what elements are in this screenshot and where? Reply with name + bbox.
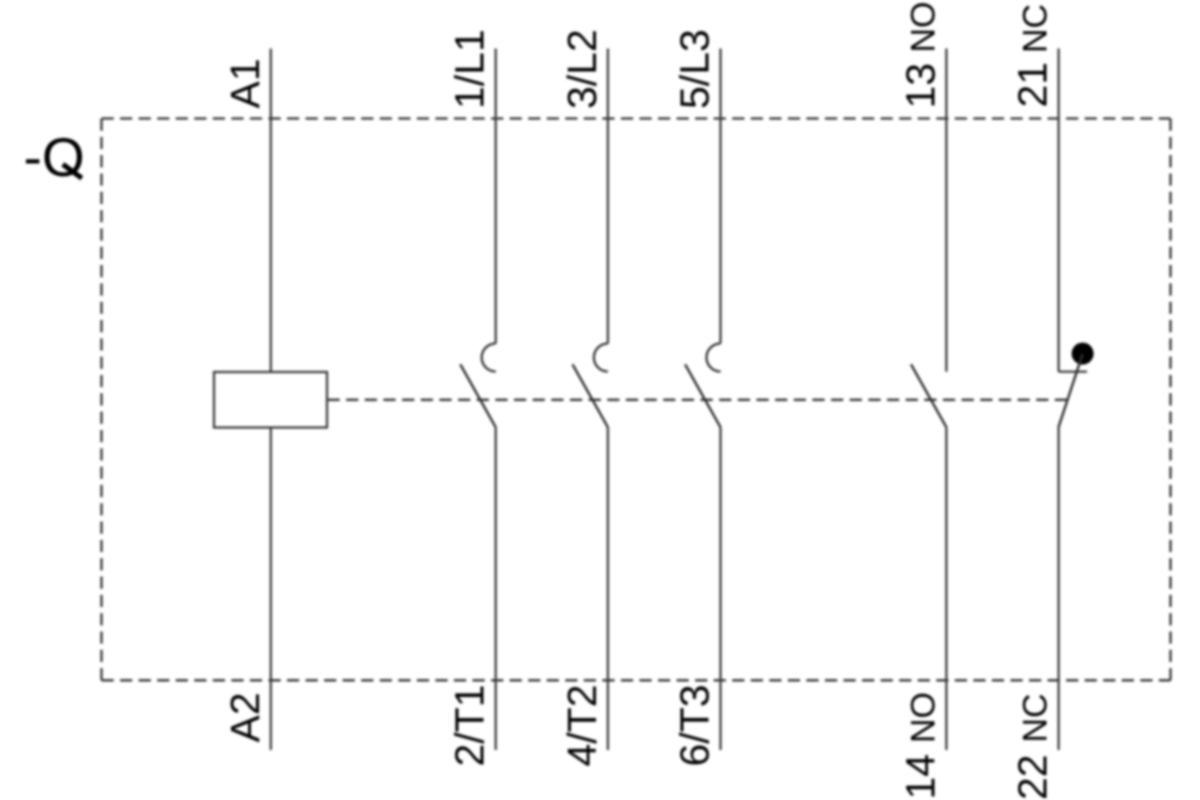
svg-text:21: 21 [1010,62,1056,108]
svg-text:2/T1: 2/T1 [447,684,493,766]
svg-text:NO: NO [904,692,942,743]
svg-text:NC: NC [1017,4,1055,53]
svg-text:NC: NC [1017,693,1055,742]
svg-text:A1: A1 [222,58,268,108]
svg-text:5/L3: 5/L3 [672,29,718,109]
svg-text:22: 22 [1010,754,1056,800]
svg-text:13: 13 [897,63,943,109]
svg-text:6/T3: 6/T3 [672,684,718,766]
svg-text:1/L1: 1/L1 [447,29,493,109]
svg-text:NO: NO [904,2,942,53]
svg-text:-O: -O [24,126,85,188]
svg-text:A2: A2 [222,692,268,742]
svg-text:14: 14 [897,754,943,800]
svg-text:4/T2: 4/T2 [559,684,605,766]
svg-text:3/L2: 3/L2 [559,29,605,109]
